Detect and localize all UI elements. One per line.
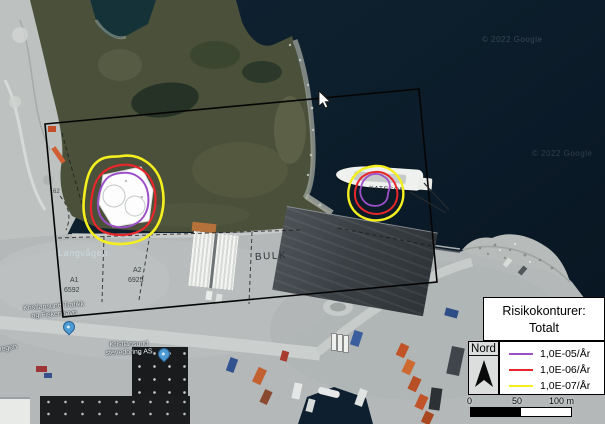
map-canvas[interactable]: Langvågen A1 6592 A2 6925 B 6532 62 BULK…: [0, 0, 605, 424]
legend-entries-box: 1,0E-05/År 1,0E-06/År 1,0E-07/År: [499, 341, 605, 395]
legend-title-box: Risikokonturer: Totalt: [483, 297, 605, 341]
mouse-cursor: [319, 91, 330, 108]
risk-contours-east: [348, 166, 403, 220]
legend-entry: 1,0E-07/År: [509, 378, 604, 394]
scale-bar-black-segment: [471, 408, 521, 416]
legend-title-line2: Totalt: [484, 320, 604, 337]
tank-farm-area: [99, 167, 153, 227]
contour-1e-05-east: [360, 174, 390, 206]
scale-bar: [470, 407, 572, 417]
contour-1e-06-east: [355, 172, 397, 214]
north-label: Nord: [469, 342, 498, 356]
legend-title-line1: Risikokonturer:: [484, 303, 604, 320]
legend-entry: 1,0E-06/År: [509, 362, 604, 378]
north-indicator-box: Nord: [468, 341, 499, 395]
north-arrow-icon: [473, 359, 495, 389]
scale-tick-100: 100 m: [549, 396, 574, 406]
scale-tick-50: 50: [512, 396, 522, 406]
scale-tick-0: 0: [467, 396, 472, 406]
legend-entry-label: 1,0E-06/År: [540, 364, 590, 376]
contour-line-swatch-purple: [509, 353, 533, 355]
legend-entry-label: 1,0E-07/År: [540, 380, 590, 392]
contour-line-swatch-red: [509, 369, 533, 371]
contour-line-swatch-yellow: [509, 385, 533, 387]
legend-entry: 1,0E-05/År: [509, 346, 604, 362]
legend-entry-label: 1,0E-05/År: [540, 348, 590, 360]
